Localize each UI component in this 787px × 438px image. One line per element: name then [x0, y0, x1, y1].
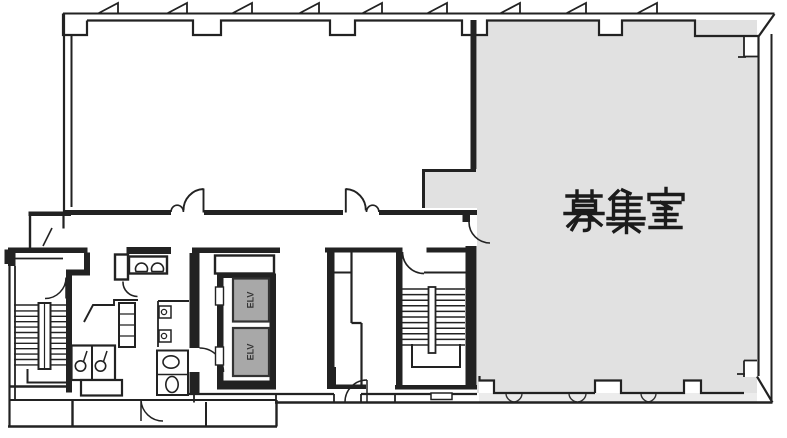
svg-text:ELV: ELV — [245, 292, 255, 309]
svg-text:ELV: ELV — [245, 344, 255, 361]
